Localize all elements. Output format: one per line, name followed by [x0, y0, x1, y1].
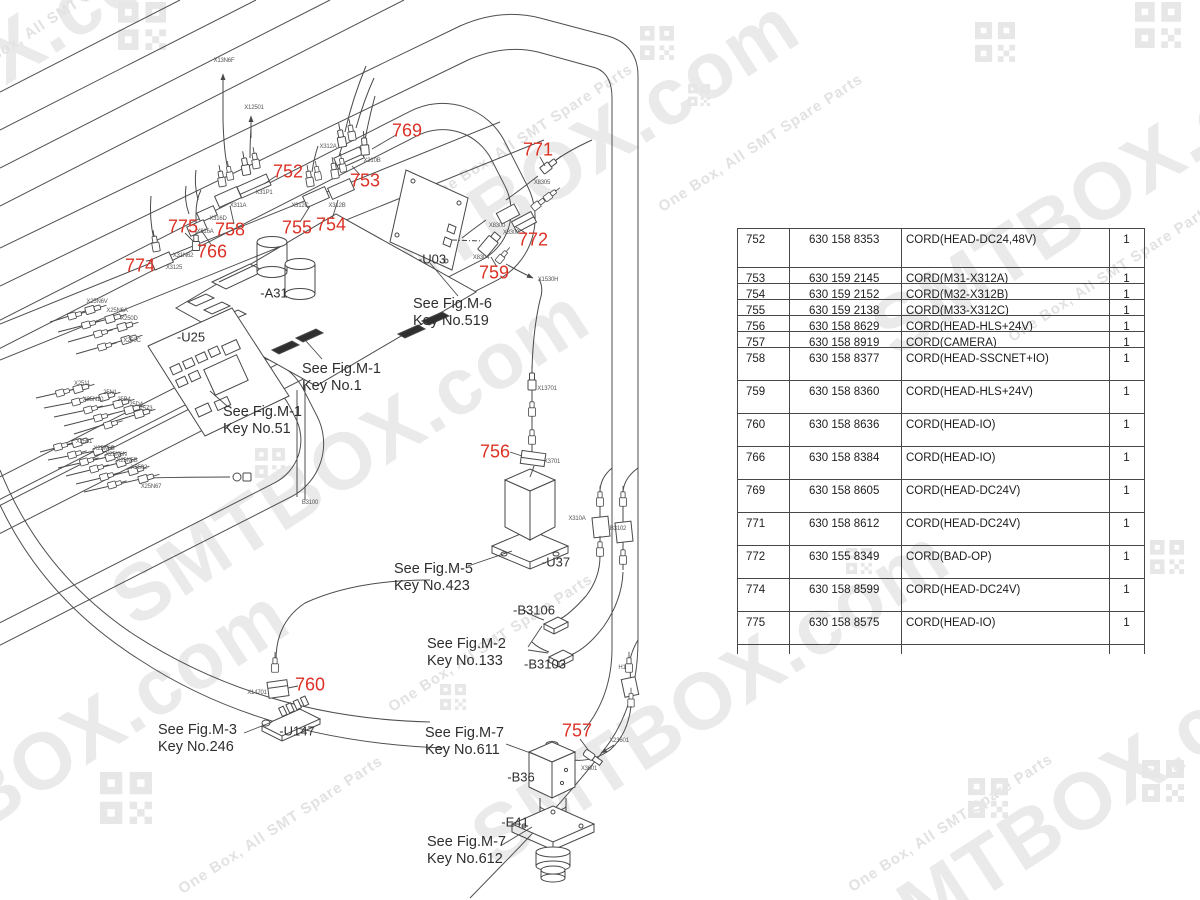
- description-cell: CORD(HEAD-SSCNET+IO): [902, 348, 1110, 380]
- description-cell: CORD(BAD-OP): [902, 546, 1110, 578]
- connector-ref-label: X250C: [123, 338, 140, 344]
- callout-755: 755: [282, 218, 312, 239]
- table-row: 753 630 159 2145 CORD(M31-X312A) 1: [738, 268, 1144, 284]
- key-no-cell: 772: [738, 546, 790, 578]
- connector-ref-label: X2501: [76, 439, 92, 445]
- description-cell: CORD(HEAD-DC24V): [902, 480, 1110, 512]
- key-no-cell: 758: [738, 348, 790, 380]
- callout-769: 769: [392, 121, 422, 142]
- key-no-cell: 752: [738, 229, 790, 267]
- connector-ref-label: X8300: [489, 223, 505, 229]
- part-no-cell: 630 158 8377: [790, 348, 902, 380]
- note-fig-m3: See Fig.M-3Key No.246: [158, 722, 237, 756]
- connector-ref-label: X311A: [230, 203, 247, 209]
- connector-ref-label: X2511: [74, 381, 90, 387]
- connector-ref-label: X25N6V: [86, 299, 107, 305]
- key-no-cell: 766: [738, 447, 790, 479]
- callout-753: 753: [350, 171, 380, 192]
- qty-cell: 1: [1110, 480, 1143, 512]
- part-no-cell: 630 158 8353: [790, 229, 902, 267]
- key-no-cell: 771: [738, 513, 790, 545]
- connector-ref-label: X312A: [319, 144, 336, 150]
- connector-ref-label: X3125: [166, 265, 182, 271]
- table-row: 774 630 158 8599 CORD(HEAD-DC24V) 1: [738, 579, 1144, 612]
- component-label-u37: -U37: [542, 555, 570, 570]
- table-row: 757 630 158 8919 CORD(CAMERA) 1: [738, 332, 1144, 348]
- component-label-b3106: -B3106: [513, 603, 555, 618]
- parts-table: 752 630 158 8353 CORD(HEAD-DC24,48V) 1 7…: [737, 228, 1145, 654]
- table-row: 759 630 158 8360 CORD(HEAD-HLS+24V) 1: [738, 381, 1144, 414]
- connector-ref-label: X13701: [537, 386, 557, 392]
- part-no-cell: 630 158 8629: [790, 316, 902, 331]
- connector-ref-label: X8305: [534, 180, 550, 186]
- component-label-b3103: -B3103: [524, 657, 566, 672]
- qty-cell: 1: [1110, 414, 1143, 446]
- description-cell: CORD(HEAD-DC24V): [902, 513, 1110, 545]
- connector-ref-label: X3601: [581, 766, 597, 772]
- table-row: 754 630 159 2152 CORD(M32-X312B) 1: [738, 284, 1144, 300]
- component-label-u03: -U03: [418, 252, 446, 267]
- connector-ref-label: X31P1: [255, 190, 272, 196]
- connector-ref-label: X14701: [247, 690, 267, 696]
- description-cell: CORD(HEAD-IO): [902, 414, 1110, 446]
- key-no-cell: 756: [738, 316, 790, 331]
- part-no-cell: 630 158 8599: [790, 579, 902, 611]
- qty-cell: 1: [1110, 229, 1143, 267]
- note-fig-m2: See Fig.M-2Key No.133: [427, 636, 506, 670]
- callout-758: 758: [215, 220, 245, 241]
- part-no-cell: 630 159 2138: [790, 300, 902, 315]
- connector-ref-label: B3102: [610, 526, 626, 532]
- connector-ref-label: X250D: [120, 316, 137, 322]
- description-cell: CORD(M33-X312C): [902, 300, 1110, 315]
- part-no-cell: 630 158 8605: [790, 480, 902, 512]
- connector-ref-label: X312C: [291, 203, 308, 209]
- table-row: 775 630 158 8575 CORD(HEAD-IO) 1: [738, 612, 1144, 645]
- note-fig-m7-key611: See Fig.M-7Key No.611: [425, 725, 504, 759]
- part-no-cell: 630 158 8636: [790, 414, 902, 446]
- cord-756-chain: [520, 279, 546, 477]
- callout-772: 772: [518, 230, 548, 251]
- connector-ref-label: X3701: [544, 459, 560, 465]
- callout-774: 774: [125, 256, 155, 277]
- component-label-u147: -U147: [279, 724, 314, 739]
- connector-ref-label: X8304: [473, 255, 489, 261]
- table-cutoff-edge: [738, 645, 1144, 654]
- table-row: 766 630 158 8384 CORD(HEAD-IO) 1: [738, 447, 1144, 480]
- cord-760-chain: [267, 580, 430, 698]
- connector-ref-label: X316D: [209, 216, 226, 222]
- table-row: 771 630 158 8612 CORD(HEAD-DC24V) 1: [738, 513, 1144, 546]
- note-fig-m1-key51: See Fig.M-1Key No.51: [223, 404, 302, 438]
- qty-cell: 1: [1110, 284, 1143, 299]
- connector-ref-label: X310B: [363, 158, 380, 164]
- qty-cell: 1: [1110, 447, 1143, 479]
- qty-cell: 1: [1110, 268, 1143, 283]
- qty-cell: 1: [1110, 513, 1143, 545]
- key-no-cell: 755: [738, 300, 790, 315]
- connector-ref-label: X1530H: [538, 277, 558, 283]
- page: SMTBOX.com SMTBOX.com SMTBOX.com SMTBOX.…: [0, 0, 1200, 900]
- connector-ref-label: 25Z3: [140, 406, 153, 412]
- key-no-cell: 775: [738, 612, 790, 644]
- part-no-cell: 630 158 8612: [790, 513, 902, 545]
- connector-ref-label: X312B: [328, 203, 345, 209]
- qty-cell: 1: [1110, 332, 1143, 347]
- description-cell: CORD(HEAD-IO): [902, 447, 1110, 479]
- part-no-cell: 630 159 2152: [790, 284, 902, 299]
- key-no-cell: 774: [738, 579, 790, 611]
- description-cell: CORD(M31-X312A): [902, 268, 1110, 283]
- description-cell: CORD(HEAD-DC24,48V): [902, 229, 1110, 267]
- connector-ref-label: 25N1: [103, 390, 117, 396]
- cord-right-chains: [560, 468, 639, 760]
- key-no-cell: 769: [738, 480, 790, 512]
- callout-760: 760: [295, 675, 325, 696]
- connector-ref-label: X2502: [131, 465, 147, 471]
- connector-ref-label: X25N10: [83, 397, 103, 403]
- callout-775: 775: [168, 217, 198, 238]
- qty-cell: 1: [1110, 612, 1143, 644]
- callout-771: 771: [523, 140, 553, 161]
- qty-cell: 1: [1110, 316, 1143, 331]
- key-no-cell: 760: [738, 414, 790, 446]
- connector-ref-label: X23601: [609, 738, 629, 744]
- callout-752: 752: [273, 162, 303, 183]
- callout-766: 766: [197, 242, 227, 263]
- note-fig-m5: See Fig.M-5Key No.423: [394, 561, 473, 595]
- connector-ref-label: H1: [618, 665, 625, 671]
- qty-cell: 1: [1110, 546, 1143, 578]
- connector-ref-label: X25N67: [141, 484, 161, 490]
- part-no-cell: 630 158 8384: [790, 447, 902, 479]
- description-cell: CORD(M32-X312B): [902, 284, 1110, 299]
- connector-ref-label: B3100: [302, 500, 318, 506]
- description-cell: CORD(HEAD-IO): [902, 612, 1110, 644]
- table-row: 760 630 158 8636 CORD(HEAD-IO) 1: [738, 414, 1144, 447]
- part-no-cell: 630 155 8349: [790, 546, 902, 578]
- table-row: 769 630 158 8605 CORD(HEAD-DC24V) 1: [738, 480, 1144, 513]
- connector-ref-label: X25N5B: [116, 458, 137, 464]
- callout-756: 756: [480, 442, 510, 463]
- camera-assembly: [512, 742, 594, 883]
- note-fig-m6: See Fig.M-6Key No.519: [413, 296, 492, 330]
- connector-ref-label: X12501: [244, 105, 264, 111]
- note-fig-m7-key612: See Fig.M-7Key No.612: [427, 834, 506, 868]
- qty-cell: 1: [1110, 579, 1143, 611]
- component-label-e41: -E41: [501, 815, 528, 830]
- key-no-cell: 759: [738, 381, 790, 413]
- description-cell: CORD(CAMERA): [902, 332, 1110, 347]
- key-no-cell: 757: [738, 332, 790, 347]
- table-row: 756 630 158 8629 CORD(HEAD-HLS+24V) 1: [738, 316, 1144, 332]
- connector-ref-label: X25N6A: [106, 308, 127, 314]
- qty-cell: 1: [1110, 381, 1143, 413]
- qty-cell: 1: [1110, 348, 1143, 380]
- description-cell: CORD(HEAD-HLS+24V): [902, 381, 1110, 413]
- description-cell: CORD(HEAD-DC24V): [902, 579, 1110, 611]
- connector-ref-label: X310A: [568, 516, 585, 522]
- component-label-u25: -U25: [177, 330, 205, 345]
- component-label-a31: -A31: [260, 286, 287, 301]
- description-cell: CORD(HEAD-HLS+24V): [902, 316, 1110, 331]
- callout-754: 754: [316, 215, 346, 236]
- part-no-cell: 630 158 8919: [790, 332, 902, 347]
- table-row: 755 630 159 2138 CORD(M33-X312C) 1: [738, 300, 1144, 316]
- qty-cell: 1: [1110, 300, 1143, 315]
- callout-757: 757: [562, 721, 592, 742]
- connector-ref-label: X31N62: [173, 253, 193, 259]
- part-no-cell: 630 158 8575: [790, 612, 902, 644]
- table-row: 752 630 158 8353 CORD(HEAD-DC24,48V) 1: [738, 229, 1144, 268]
- key-no-cell: 754: [738, 284, 790, 299]
- table-row: 772 630 155 8349 CORD(BAD-OP) 1: [738, 546, 1144, 579]
- key-no-cell: 753: [738, 268, 790, 283]
- component-label-b36: -B36: [507, 770, 534, 785]
- note-fig-m1-key1: See Fig.M-1Key No.1: [302, 361, 381, 395]
- part-no-cell: 630 158 8360: [790, 381, 902, 413]
- table-row: 758 630 158 8377 CORD(HEAD-SSCNET+IO) 1: [738, 348, 1144, 381]
- connector-ref-label: X8309: [503, 230, 519, 236]
- callout-759: 759: [479, 263, 509, 284]
- connector-ref-label: X13N6F: [214, 58, 235, 64]
- part-no-cell: 630 159 2145: [790, 268, 902, 283]
- connector-ref-label: X316A: [196, 229, 213, 235]
